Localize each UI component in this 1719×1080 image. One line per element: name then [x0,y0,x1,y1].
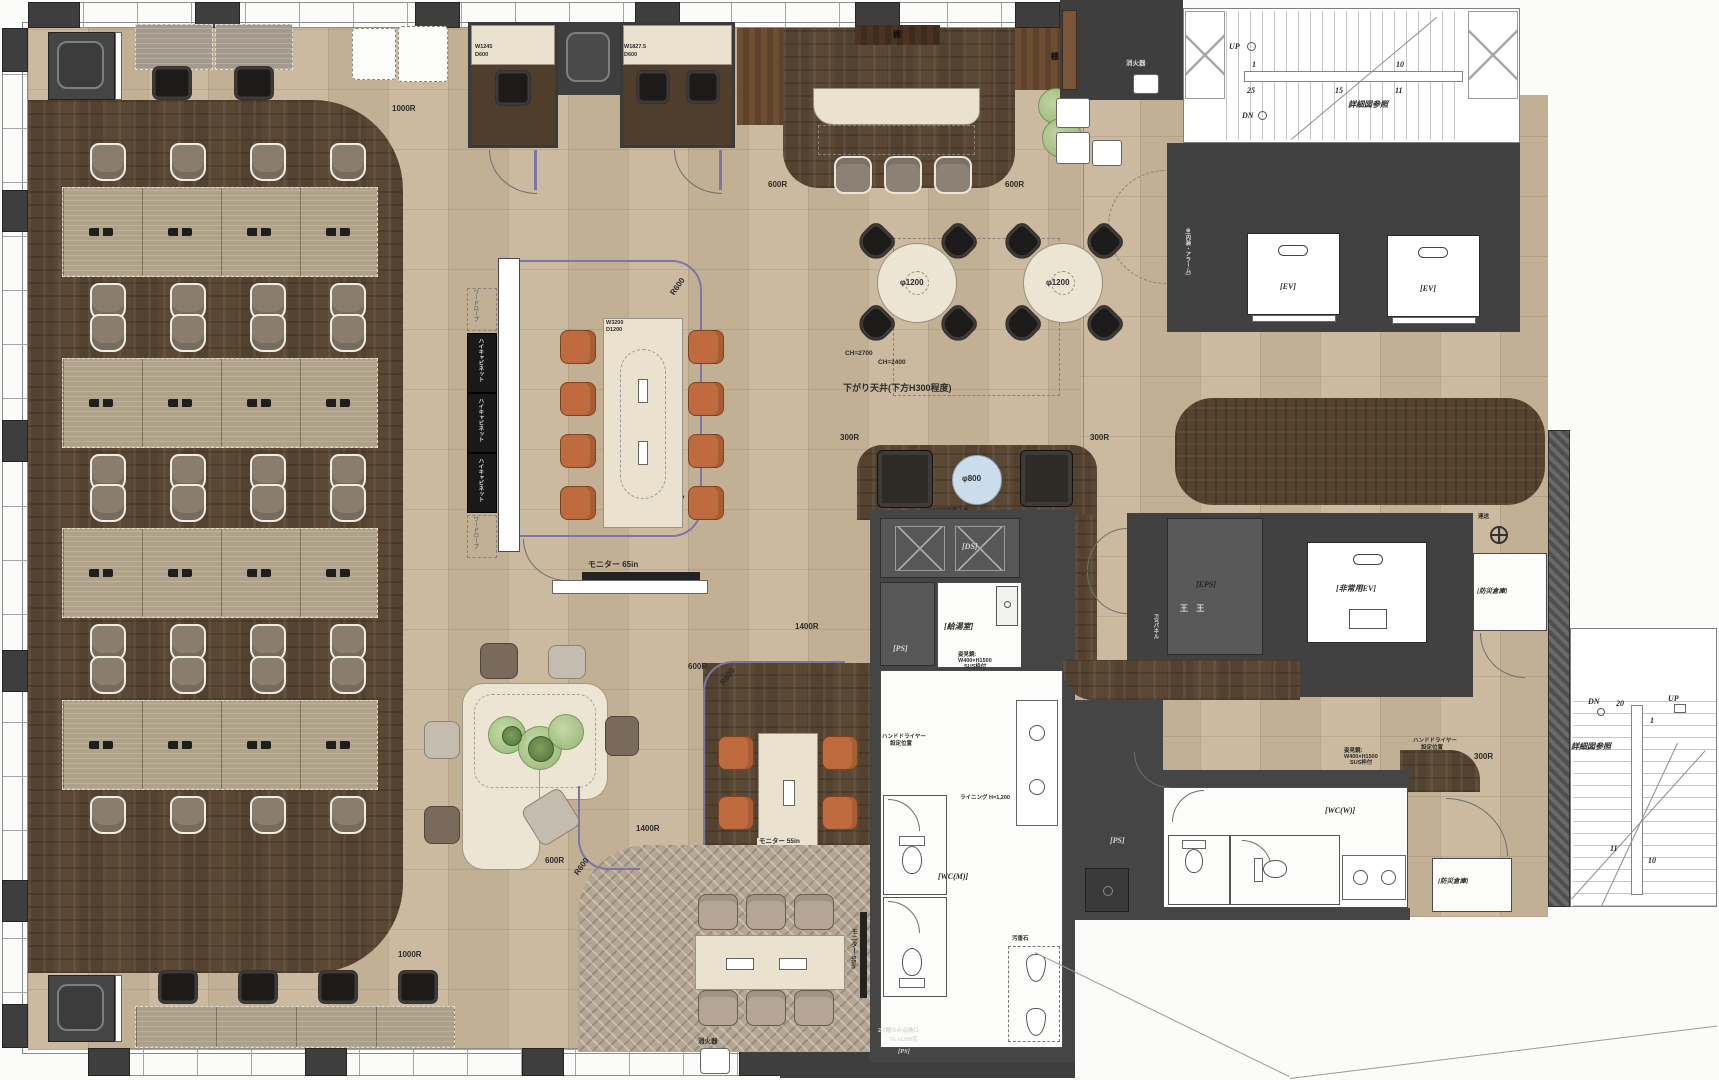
monitor-label: モニター 55in [849,928,856,969]
plant-dark [528,736,554,762]
office-chair [330,796,366,834]
office-chair [90,143,126,181]
wall-pier [2,190,28,232]
stone-boundary [578,786,640,870]
bar-wood-floor [737,28,785,125]
stair-number: 11 [1610,844,1618,853]
office-chair [250,484,286,522]
printer [1092,140,1122,166]
lounge-sofa [1020,450,1073,507]
ceiling-height-label: CH=2700 [845,350,873,357]
vanity-counter [1342,855,1406,900]
ps-shaft [880,582,935,666]
gray-desk [135,24,213,70]
booth-divider [558,22,620,95]
elevator-car [1387,235,1480,317]
shaft-box [1085,868,1129,912]
stair-number: 15 [1335,86,1343,95]
office-chair [330,143,366,181]
orange-chair [688,330,724,364]
hand-dryer-note: ハンドドライヤー [882,734,926,740]
booth-size-label: W1245 [475,44,492,50]
stair-marker [1247,42,1256,51]
office-chair [330,484,366,522]
ps-label: [PS] [1110,836,1125,845]
orange-chair [822,736,858,770]
darkbrown-chair [480,643,518,679]
stair-marker [1674,704,1686,713]
wardrobe-label: ワードローブ [472,289,478,322]
floor-plan: 1000R 1000R W1245 D600 W1827.5 D600 棚 棚 … [0,0,1719,1080]
radius-label: 300R [1474,752,1493,761]
lightgray-chair [548,645,586,679]
fire-extinguisher-label: 消火器 [1126,60,1146,67]
wall-pier [28,2,80,28]
orange-chair [560,382,596,416]
radius-label: 600R [768,180,787,189]
power-unit [326,741,350,749]
wall-pier [1015,2,1060,28]
toilet [902,846,922,874]
office-chair [90,314,126,352]
office-chair [330,314,366,352]
radius-label: 1400R [795,622,819,631]
hand-dryer-note: 設定位置 [890,741,912,747]
corridor-carpet-corner [1400,750,1480,792]
radius-label: 1000R [392,104,416,113]
wall-gap [115,975,122,1042]
wall-pier [739,1048,781,1076]
power-unit [89,399,113,407]
wc-women-label: [WC(W)] [1325,806,1355,815]
stair-marker [1597,708,1605,716]
stair-number: 10 [1396,60,1404,69]
standpipe-label: 連送 [1478,514,1489,520]
radius-label: 1000R [398,950,422,959]
power-unit [168,569,192,577]
hatch-note: FL+1200芯 [890,1037,918,1043]
cabinet-label: ハイキャビネット [477,458,483,502]
bar-counter-extension [818,125,975,155]
bottom-desk [135,1006,455,1048]
stair-up-label: UP [1668,694,1679,703]
power-unit [168,228,192,236]
table-size-label: W3200 [606,320,623,326]
orange-chair [688,434,724,468]
power-unit [247,741,271,749]
stair-detail-note: 詳細図参照 [1348,100,1388,109]
lightgray-chair [424,721,460,759]
black-chair [495,70,531,106]
exterior-wall-hatched [1548,430,1570,907]
beige-chair [746,894,786,930]
toilet [1185,849,1203,873]
monitor-wall [552,580,708,594]
orange-chair [822,796,858,830]
corridor-carpet-band [1063,660,1300,700]
radius-label: 600R [545,856,564,865]
office-chair [90,796,126,834]
office-chair [170,796,206,834]
beige-chair [794,894,834,930]
ds-label: [DS] [962,542,978,551]
monitor-65in [582,572,700,580]
mirror-note: SUS枠付 [1350,760,1372,766]
fix-panel-label: FIXパネル [1152,614,1158,639]
power-unit [247,399,271,407]
darkbrown-chair [424,806,460,844]
office-chair [250,143,286,181]
storage-box [398,26,448,82]
staircase-bottom [1570,628,1717,907]
ps-label: [PS] [898,1048,910,1055]
toilet-tank [899,978,925,988]
office-chair [250,314,286,352]
stair-marker [1258,111,1267,120]
wall-gap [115,32,122,100]
printer [1056,132,1090,164]
vanity-counter [1016,700,1058,826]
booth-size-label: D600 [475,52,488,58]
disaster-storage-label: [防災倉庫] [1438,878,1468,885]
stair-number: 10 [1648,856,1656,865]
darkbrown-chair [605,716,639,756]
elevator-label: [EV] [1420,284,1436,293]
elevator-label: [EV] [1280,282,1296,291]
beige-chair [698,990,738,1026]
office-chair [250,796,286,834]
fire-extinguisher [1133,74,1159,94]
radius-label: 600R [1005,180,1024,189]
elevator-sill [1392,317,1476,324]
dropped-ceiling-label: 下がり天井(下方H300程度) [843,383,952,393]
wall-pier [415,2,460,28]
fire-extinguisher-label: 消火器 [698,1038,718,1045]
ev-wall-note: ⊕[内装・アラーム] [1184,228,1190,275]
table-size-label: φ1200 [900,278,924,287]
office-chair [170,143,206,181]
hand-dryer-note: ハンドドライヤー [1413,738,1457,744]
stair-number: 11 [1395,86,1403,95]
black-chair [238,970,278,1004]
standpipe [1490,526,1508,544]
stone-meeting-table [695,935,845,990]
office-chair [250,656,286,694]
stair-number: 1 [1252,60,1256,69]
ds-shaft [880,518,1020,578]
ps-label: [PS] [893,644,908,653]
meeting-whiteboard-wall [498,258,520,552]
wardrobe-label: ワードローブ [472,516,478,549]
power-unit [326,569,350,577]
toilet-tank [1182,840,1206,849]
hand-dryer-note: 設定位置 [1421,745,1443,751]
orange-chair [560,330,596,364]
power-unit [89,741,113,749]
black-chair [152,66,192,100]
lounge-sofa [877,450,933,508]
stair-number: 25 [1247,86,1255,95]
booth-size-label: W1827.5 [624,44,646,50]
stool-chair [884,156,922,194]
power-unit [168,399,192,407]
fire-extinguisher [700,1048,730,1074]
wall-pier [2,420,28,462]
power-unit [89,228,113,236]
locker-cabinet [48,975,115,1042]
stair-dn-label: DN [1588,697,1600,706]
power-unit [326,399,350,407]
office-chair [170,314,206,352]
office-chair [330,656,366,694]
cabinet-label: ハイキャビネット [477,338,483,382]
monitor-55in [860,912,867,998]
black-chair [686,70,720,104]
toilet-tank [1254,858,1263,882]
table-size-label: D1200 [606,327,622,333]
printer [1056,98,1090,128]
toilet [1263,860,1287,878]
orange-chair [718,796,754,830]
power-unit [247,228,271,236]
wall-pier [2,28,28,72]
osui-label: 汚垂石 [1012,936,1029,942]
orange-chair [560,486,596,520]
staircase-top [1183,8,1520,143]
emergency-ev-label: [非常用EV] [1336,584,1376,593]
shelf-label: 棚 [1050,52,1059,60]
power-unit [247,569,271,577]
table-size-label: φ800 [962,474,981,483]
hatch-note: 2,7階のみ点検口 [878,1028,919,1034]
black-chair [398,970,438,1004]
toilet [902,948,922,976]
hall-rug [1175,398,1545,505]
black-chair [234,66,274,100]
window-band-bottom [88,1048,788,1076]
wall-pier [2,650,28,692]
office-chair [90,484,126,522]
gray-desk [215,24,293,70]
door-leaf [1062,10,1077,90]
kitchenette-label: [給湯室] [944,622,973,631]
monitor-label: モニター 65in [588,560,638,569]
small-meeting-table [758,733,818,850]
black-chair [318,970,358,1004]
outside-white [1548,905,1719,1080]
wall-pier [522,1048,564,1076]
power-unit [168,741,192,749]
orange-chair [718,736,754,770]
elevator-sill [1252,315,1336,322]
eps-label: [EPS] [1196,580,1216,589]
orange-chair [688,382,724,416]
radius-label: 300R [1090,433,1109,442]
plant-dark [502,726,522,746]
stair-number: 1 [1650,716,1654,725]
bar-counter [813,88,980,125]
wc-women-wall-top [1163,770,1410,787]
wall-pier [2,1004,28,1048]
outside-white [1570,430,1719,630]
beige-chair [794,990,834,1026]
beige-chair [698,894,738,930]
orange-chair [688,486,724,520]
stair-up-label: UP [1229,42,1240,51]
meeting-table [603,318,683,528]
locker-cabinet [48,32,115,100]
table-size-label: φ1200 [1046,278,1070,287]
stair-dn-label: DN [1242,111,1254,120]
stair-number: 20 [1616,699,1624,708]
radius-label: 300R [840,433,859,442]
wall-pier [2,880,28,922]
stool-chair [934,156,972,194]
wall-pier [305,1048,347,1076]
stool-chair [834,156,872,194]
wall-marks: 王 王 [1180,604,1207,613]
power-unit [89,569,113,577]
black-chair [158,970,198,1004]
elevator-car [1247,233,1340,315]
radius-label: 600R [688,662,707,671]
orange-chair [560,434,596,468]
office-chair [170,484,206,522]
disaster-storage-label: [防災倉庫] [1477,588,1507,595]
cabinet-label: ハイキャビネット [477,398,483,442]
black-chair [636,70,670,104]
stair-lobby-wall [1060,0,1183,100]
office-chair [90,656,126,694]
stair-detail-note: 詳細図参照 [1571,742,1611,751]
shelf-label: 棚 [893,30,901,39]
outside-white [1548,0,1719,430]
ceiling-height-label: CH=2400 [878,359,906,366]
toilet-tank [899,836,925,846]
storage-box [352,28,396,80]
office-chair [170,656,206,694]
booth-size-label: D600 [624,52,637,58]
lining-note: ライニング H=1,200 [960,795,1010,801]
beige-chair [746,990,786,1026]
power-unit [326,228,350,236]
wall-pier [88,1048,130,1076]
